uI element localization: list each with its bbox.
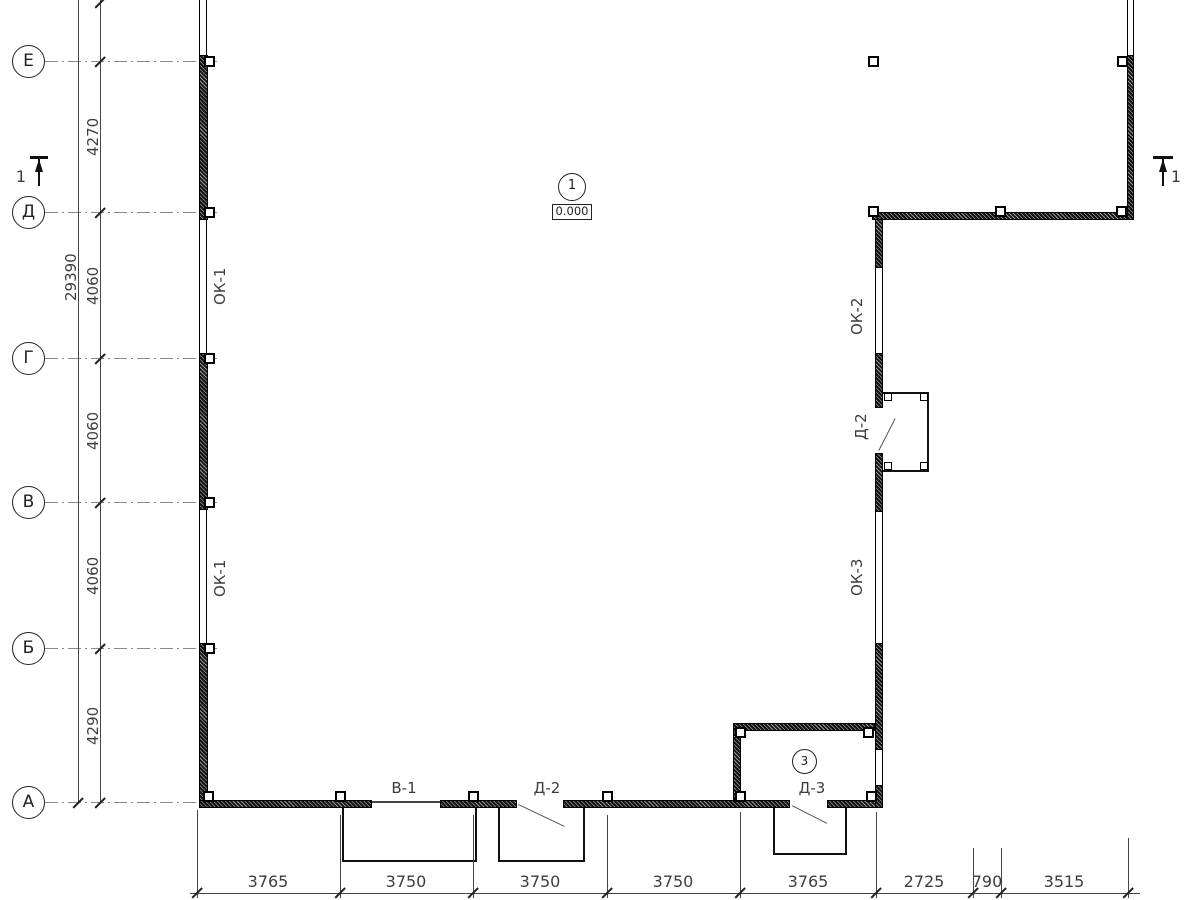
column-marker [204, 643, 215, 654]
column-marker-freestanding [868, 56, 879, 67]
column-marker [995, 206, 1006, 217]
dim-text-3750-1: 3750 [366, 872, 446, 891]
dim-text-3515: 3515 [1024, 872, 1104, 891]
dim-ext-line [473, 815, 474, 898]
wall-right [1127, 55, 1134, 220]
window-ok1-upper [199, 220, 207, 353]
leader-line-d2-bottom [518, 804, 564, 827]
porch-d3-right [845, 808, 847, 855]
wall-right-mid-1 [875, 212, 883, 268]
dim-ext-line [197, 810, 198, 898]
dim-text-4290: 4290 [84, 686, 104, 766]
gate-threshold-v1 [372, 801, 440, 803]
dim-text-2725: 2725 [884, 872, 964, 891]
window-vestibule [875, 750, 883, 785]
porch-d2-right [583, 808, 585, 862]
leader-line-d3 [792, 805, 827, 824]
dim-text-3750-2: 3750 [500, 872, 580, 891]
porch-v1-bottom [342, 860, 477, 862]
column-marker [735, 727, 746, 738]
dim-line-overall [78, 0, 79, 803]
column-marker [204, 497, 215, 508]
wall-bottom-3 [563, 800, 790, 808]
column-marker [863, 727, 874, 738]
dim-text-3765-1: 3765 [228, 872, 308, 891]
dim-ext-line [740, 812, 741, 898]
section-number-right: 1 [1170, 167, 1182, 186]
dim-text-790: 790 [965, 872, 1009, 891]
column-marker [735, 791, 746, 802]
room-number-bubble: 3 [792, 749, 817, 774]
dim-ext-line [340, 815, 341, 898]
landing-corner-marker [884, 393, 892, 401]
label-d2-right: Д-2 [852, 400, 872, 454]
dim-text-4060-3: 4060 [84, 536, 104, 616]
window-ok2 [875, 268, 883, 353]
column-marker [204, 207, 215, 218]
wall-right-mid-3 [875, 453, 883, 512]
porch-d3-left [773, 808, 775, 855]
window-right-top [1127, 0, 1134, 55]
column-marker [1116, 206, 1127, 217]
level-mark: 0.000 [552, 204, 592, 220]
dim-text-3765-2: 3765 [768, 872, 848, 891]
dim-text-3750-3: 3750 [633, 872, 713, 891]
axis-bubble-v: В [12, 486, 45, 519]
wall-vestibule-top [733, 723, 875, 731]
axis-line-e [45, 61, 217, 62]
porch-d2-bottom [498, 860, 585, 862]
dim-text-4060-1: 4060 [84, 246, 104, 326]
dim-text-overall: 29390 [62, 227, 82, 327]
column-marker [602, 791, 613, 802]
axis-bubble-g: Г [12, 342, 45, 375]
node-number-bubble: 1 [558, 173, 586, 201]
axis-bubble-b: Б [12, 632, 45, 665]
landing-corner-marker [920, 462, 928, 470]
dim-text-4270: 4270 [84, 97, 104, 177]
column-marker [204, 353, 215, 364]
floor-plan-drawing: Е Д Г В Б А 29390 4270 4060 4060 4060 42… [0, 0, 1200, 900]
porch-v1-right [475, 808, 477, 862]
label-d2-bottom: Д-2 [517, 779, 577, 797]
wall-left-1 [199, 55, 208, 220]
column-marker [1117, 56, 1128, 67]
door-d2-landing-bottom [883, 470, 929, 472]
leader-line-d2-right [878, 418, 895, 451]
landing-corner-marker [884, 462, 892, 470]
axis-line-g [45, 358, 217, 359]
axis-line-a [45, 802, 217, 803]
landing-corner-marker [920, 393, 928, 401]
label-ok1-upper: ОК-1 [211, 256, 231, 316]
porch-d3-bottom [773, 853, 847, 855]
window-ok1-lower [199, 510, 207, 643]
axis-bubble-e: Е [12, 45, 45, 78]
wall-left-3 [199, 643, 208, 802]
wall-right-mid-2 [875, 353, 883, 408]
wall-left-2 [199, 353, 208, 510]
porch-d2-left [498, 808, 500, 862]
axis-line-b [45, 648, 217, 649]
section-arrow-icon-right [1159, 159, 1167, 172]
column-marker [203, 791, 214, 802]
label-ok2: ОК-2 [848, 286, 868, 346]
axis-bubble-a: А [12, 786, 45, 819]
label-v1: В-1 [374, 779, 434, 797]
section-arrow-icon-left [35, 159, 43, 172]
window-left-top [199, 0, 207, 55]
window-ok3 [875, 512, 883, 643]
axis-line-v [45, 502, 217, 503]
column-marker [866, 791, 877, 802]
section-number-left: 1 [15, 167, 27, 186]
column-marker [868, 206, 879, 217]
axis-bubble-d: Д [12, 196, 45, 229]
dim-ext-line [876, 812, 877, 898]
wall-bottom-1 [199, 800, 372, 808]
dim-text-4060-2: 4060 [84, 391, 104, 471]
porch-v1-left [342, 808, 344, 862]
wall-right-mid-4 [875, 643, 883, 750]
label-ok3: ОК-3 [848, 547, 868, 607]
label-d3: Д-3 [782, 779, 842, 797]
label-ok1-lower: ОК-1 [211, 548, 231, 608]
dim-ext-line [607, 815, 608, 898]
door-d2-landing-right [927, 392, 929, 472]
wall-vestibule-left [733, 729, 741, 800]
column-marker [335, 791, 346, 802]
column-marker [468, 791, 479, 802]
axis-line-d [45, 212, 217, 213]
column-marker [204, 56, 215, 67]
